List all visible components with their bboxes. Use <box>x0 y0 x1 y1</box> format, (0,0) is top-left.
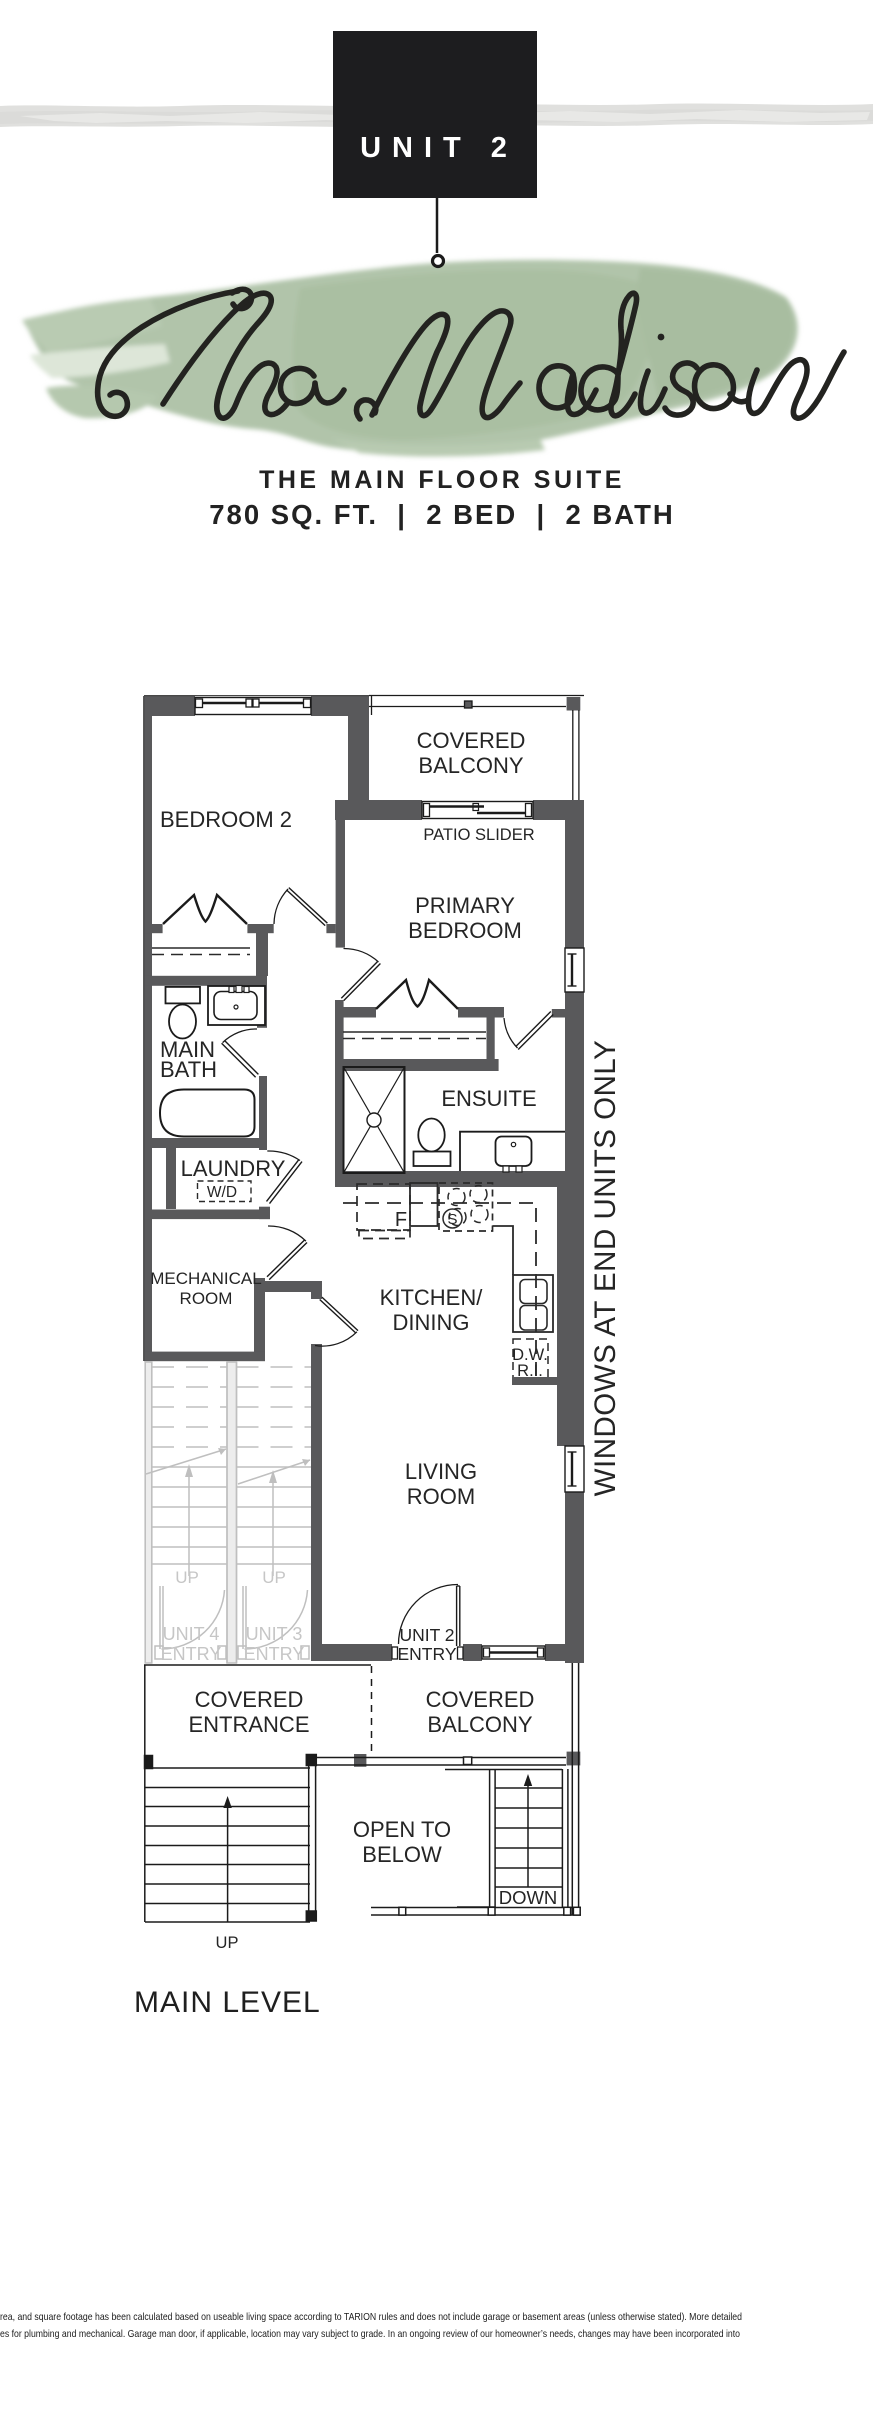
svg-text:ENTRANCE: ENTRANCE <box>188 1712 309 1737</box>
svg-text:LIVING: LIVING <box>405 1459 477 1484</box>
svg-text:ENTRY: ENTRY <box>398 1644 457 1664</box>
svg-text:OPEN TO: OPEN TO <box>353 1817 451 1842</box>
svg-text:ENSUITE: ENSUITE <box>441 1086 536 1111</box>
svg-text:BATH: BATH <box>160 1057 217 1082</box>
svg-text:MAIN LEVEL: MAIN LEVEL <box>134 1986 321 2019</box>
svg-text:rea, and square footage has be: rea, and square footage has been calcula… <box>0 2311 742 2323</box>
svg-text:LAUNDRY: LAUNDRY <box>181 1156 286 1181</box>
svg-text:PRIMARY: PRIMARY <box>415 893 515 918</box>
svg-text:BELOW: BELOW <box>362 1842 442 1867</box>
svg-text:ENTRY: ENTRY <box>244 1644 305 1664</box>
svg-text:BEDROOM 2: BEDROOM 2 <box>160 807 292 832</box>
svg-text:DINING: DINING <box>393 1310 470 1335</box>
svg-text:780 SQ. FT. | 2 BED | 2 BA: 780 SQ. FT. | 2 BED | 2 BATH <box>209 499 675 530</box>
svg-text:UNIT 4: UNIT 4 <box>163 1624 220 1644</box>
svg-text:W/D: W/D <box>207 1184 237 1201</box>
svg-text:UNIT 2: UNIT 2 <box>360 132 518 164</box>
svg-text:WINDOWS AT END UNITS ONLY: WINDOWS AT END UNITS ONLY <box>589 1040 622 1497</box>
svg-text:UP: UP <box>175 1568 199 1587</box>
svg-text:es for plumbing and mechanical: es for plumbing and mechanical. Garage m… <box>0 2328 740 2340</box>
svg-text:UP: UP <box>216 1934 239 1952</box>
svg-text:KITCHEN/: KITCHEN/ <box>380 1285 484 1310</box>
svg-text:UNIT 2: UNIT 2 <box>399 1625 454 1645</box>
svg-text:ROOM: ROOM <box>407 1484 475 1509</box>
svg-text:BEDROOM: BEDROOM <box>408 918 522 943</box>
svg-text:COVERED: COVERED <box>426 1687 535 1712</box>
svg-text:COVERED: COVERED <box>195 1687 304 1712</box>
svg-text:PATIO SLIDER: PATIO SLIDER <box>423 826 534 844</box>
svg-text:MECHANICAL: MECHANICAL <box>150 1269 261 1288</box>
svg-text:THE MAIN FLOOR SUITE: THE MAIN FLOOR SUITE <box>259 466 625 494</box>
svg-text:ENTRY: ENTRY <box>161 1644 222 1664</box>
svg-text:R.I.: R.I. <box>517 1362 543 1380</box>
svg-text:S: S <box>447 1211 457 1228</box>
svg-text:COVERED: COVERED <box>417 728 526 753</box>
svg-text:DOWN: DOWN <box>499 1887 558 1908</box>
svg-text:UNIT 3: UNIT 3 <box>246 1624 303 1644</box>
svg-text:ROOM: ROOM <box>180 1289 233 1308</box>
svg-text:BALCONY: BALCONY <box>427 1712 532 1737</box>
svg-text:BALCONY: BALCONY <box>418 753 523 778</box>
svg-text:UP: UP <box>262 1568 286 1587</box>
svg-text:F: F <box>395 1209 407 1231</box>
